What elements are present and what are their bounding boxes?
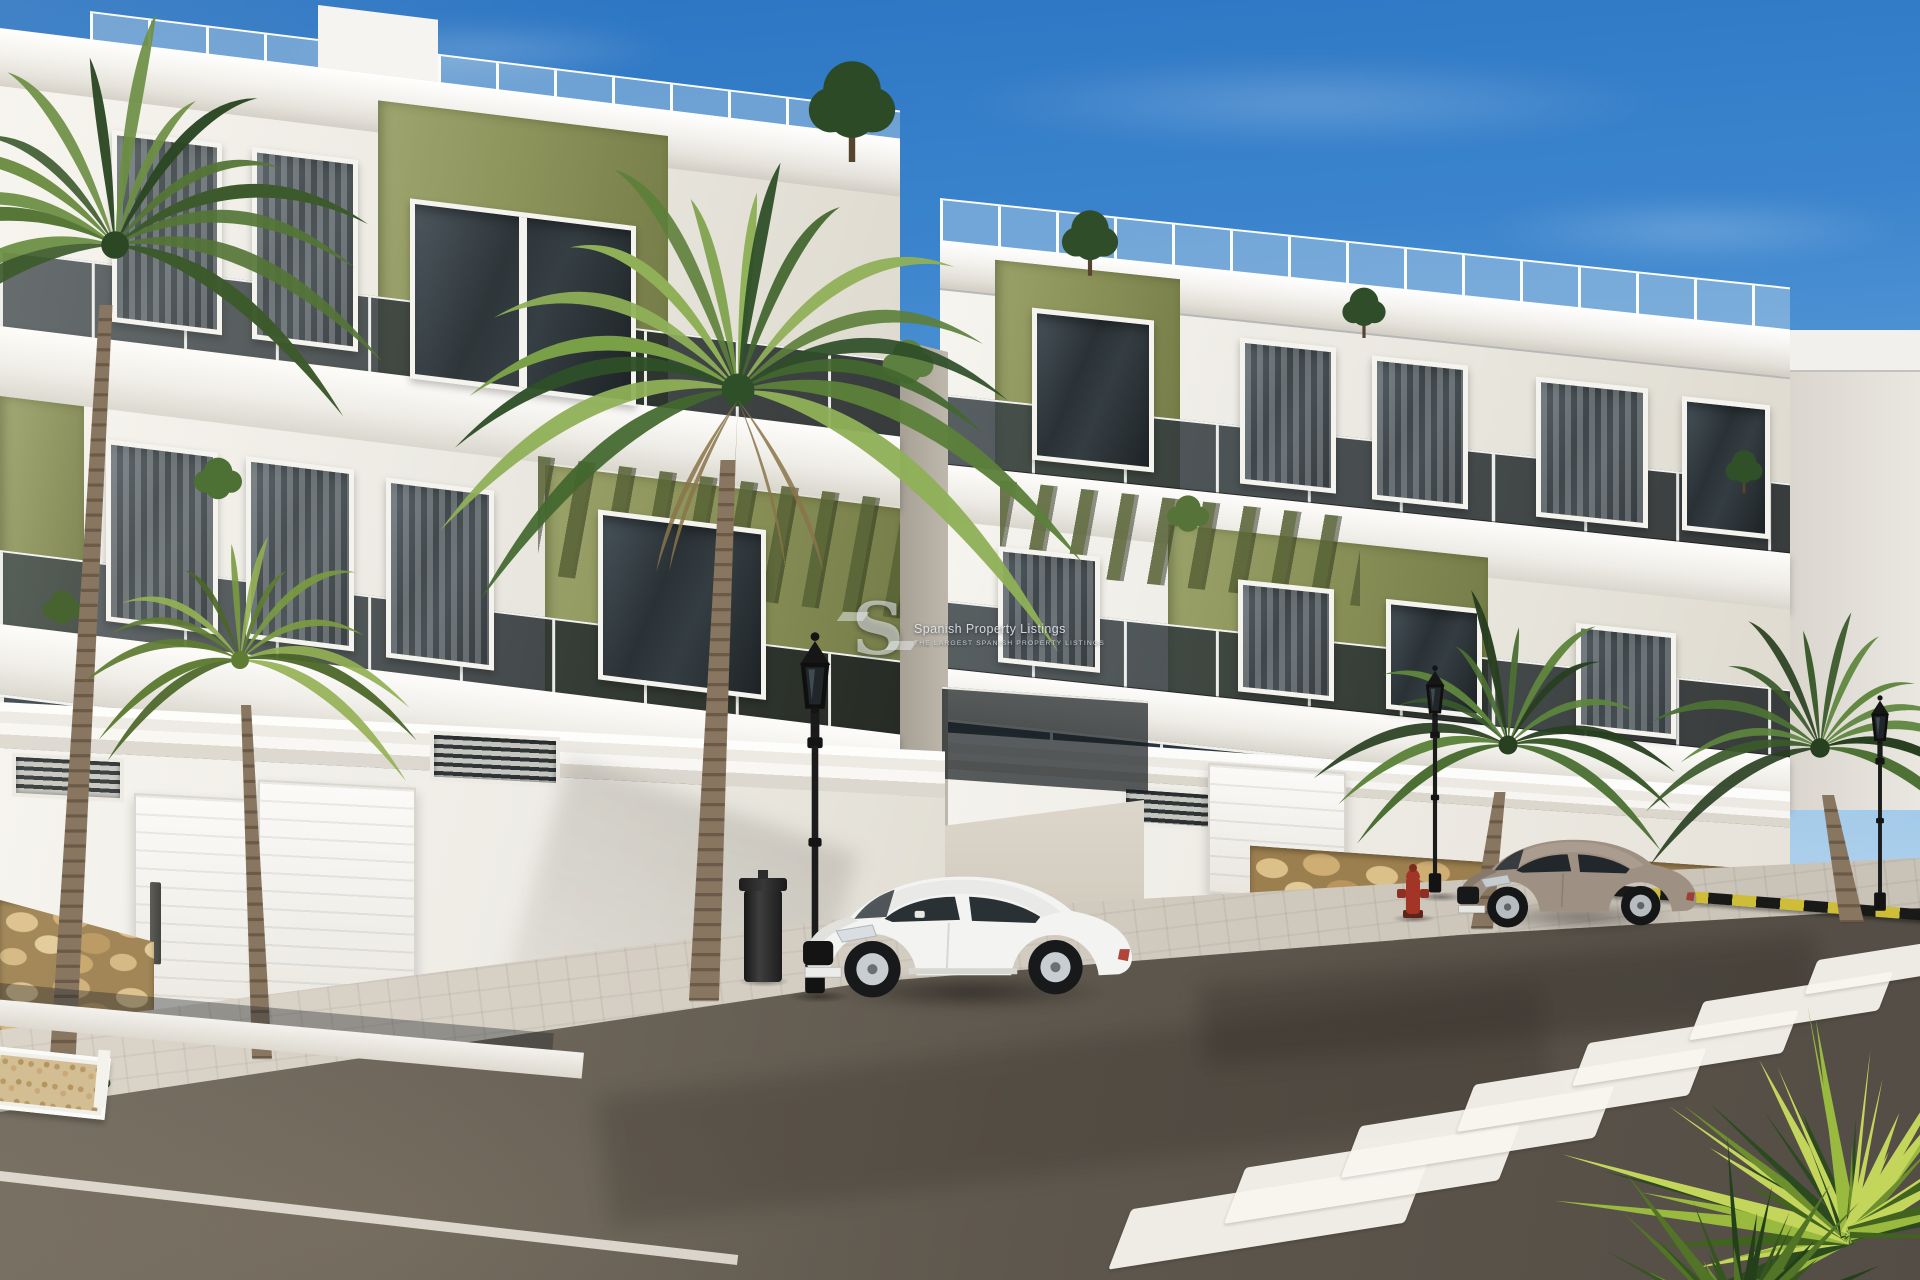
license-plate	[805, 967, 841, 977]
front-wheel	[844, 941, 900, 997]
litter-bin-cap	[739, 878, 787, 891]
fire-hydrant	[1396, 860, 1430, 920]
street-planter	[0, 1046, 111, 1120]
car-grille	[1457, 887, 1479, 905]
street-lamppost	[1854, 694, 1906, 916]
white-coupe-car	[796, 856, 1148, 1008]
watermark-s-logo: S	[852, 596, 904, 662]
rear-wheel	[1621, 886, 1660, 925]
litter-bin	[744, 890, 782, 982]
car-grille	[803, 941, 833, 965]
license-plate	[1459, 906, 1485, 913]
taillight	[1686, 892, 1695, 901]
front-wheel	[1487, 887, 1528, 928]
watermark-title: Spanish Property Listings	[914, 622, 1105, 636]
rear-wheel	[1028, 940, 1082, 994]
litter-bin-knob	[758, 870, 768, 879]
beige-coupe-car	[1452, 820, 1708, 940]
property-render-image: S Spanish Property Listings THE LARGEST …	[0, 0, 1920, 1280]
watermark: S Spanish Property Listings THE LARGEST …	[852, 596, 1105, 662]
watermark-tagline: THE LARGEST SPANISH PROPERTY LISTINGS	[914, 640, 1105, 647]
watermark-text: Spanish Property Listings THE LARGEST SP…	[914, 596, 1105, 647]
taillight	[1118, 949, 1130, 961]
planter-gravel	[0, 1055, 102, 1111]
crosswalk-stripe	[1804, 933, 1920, 994]
